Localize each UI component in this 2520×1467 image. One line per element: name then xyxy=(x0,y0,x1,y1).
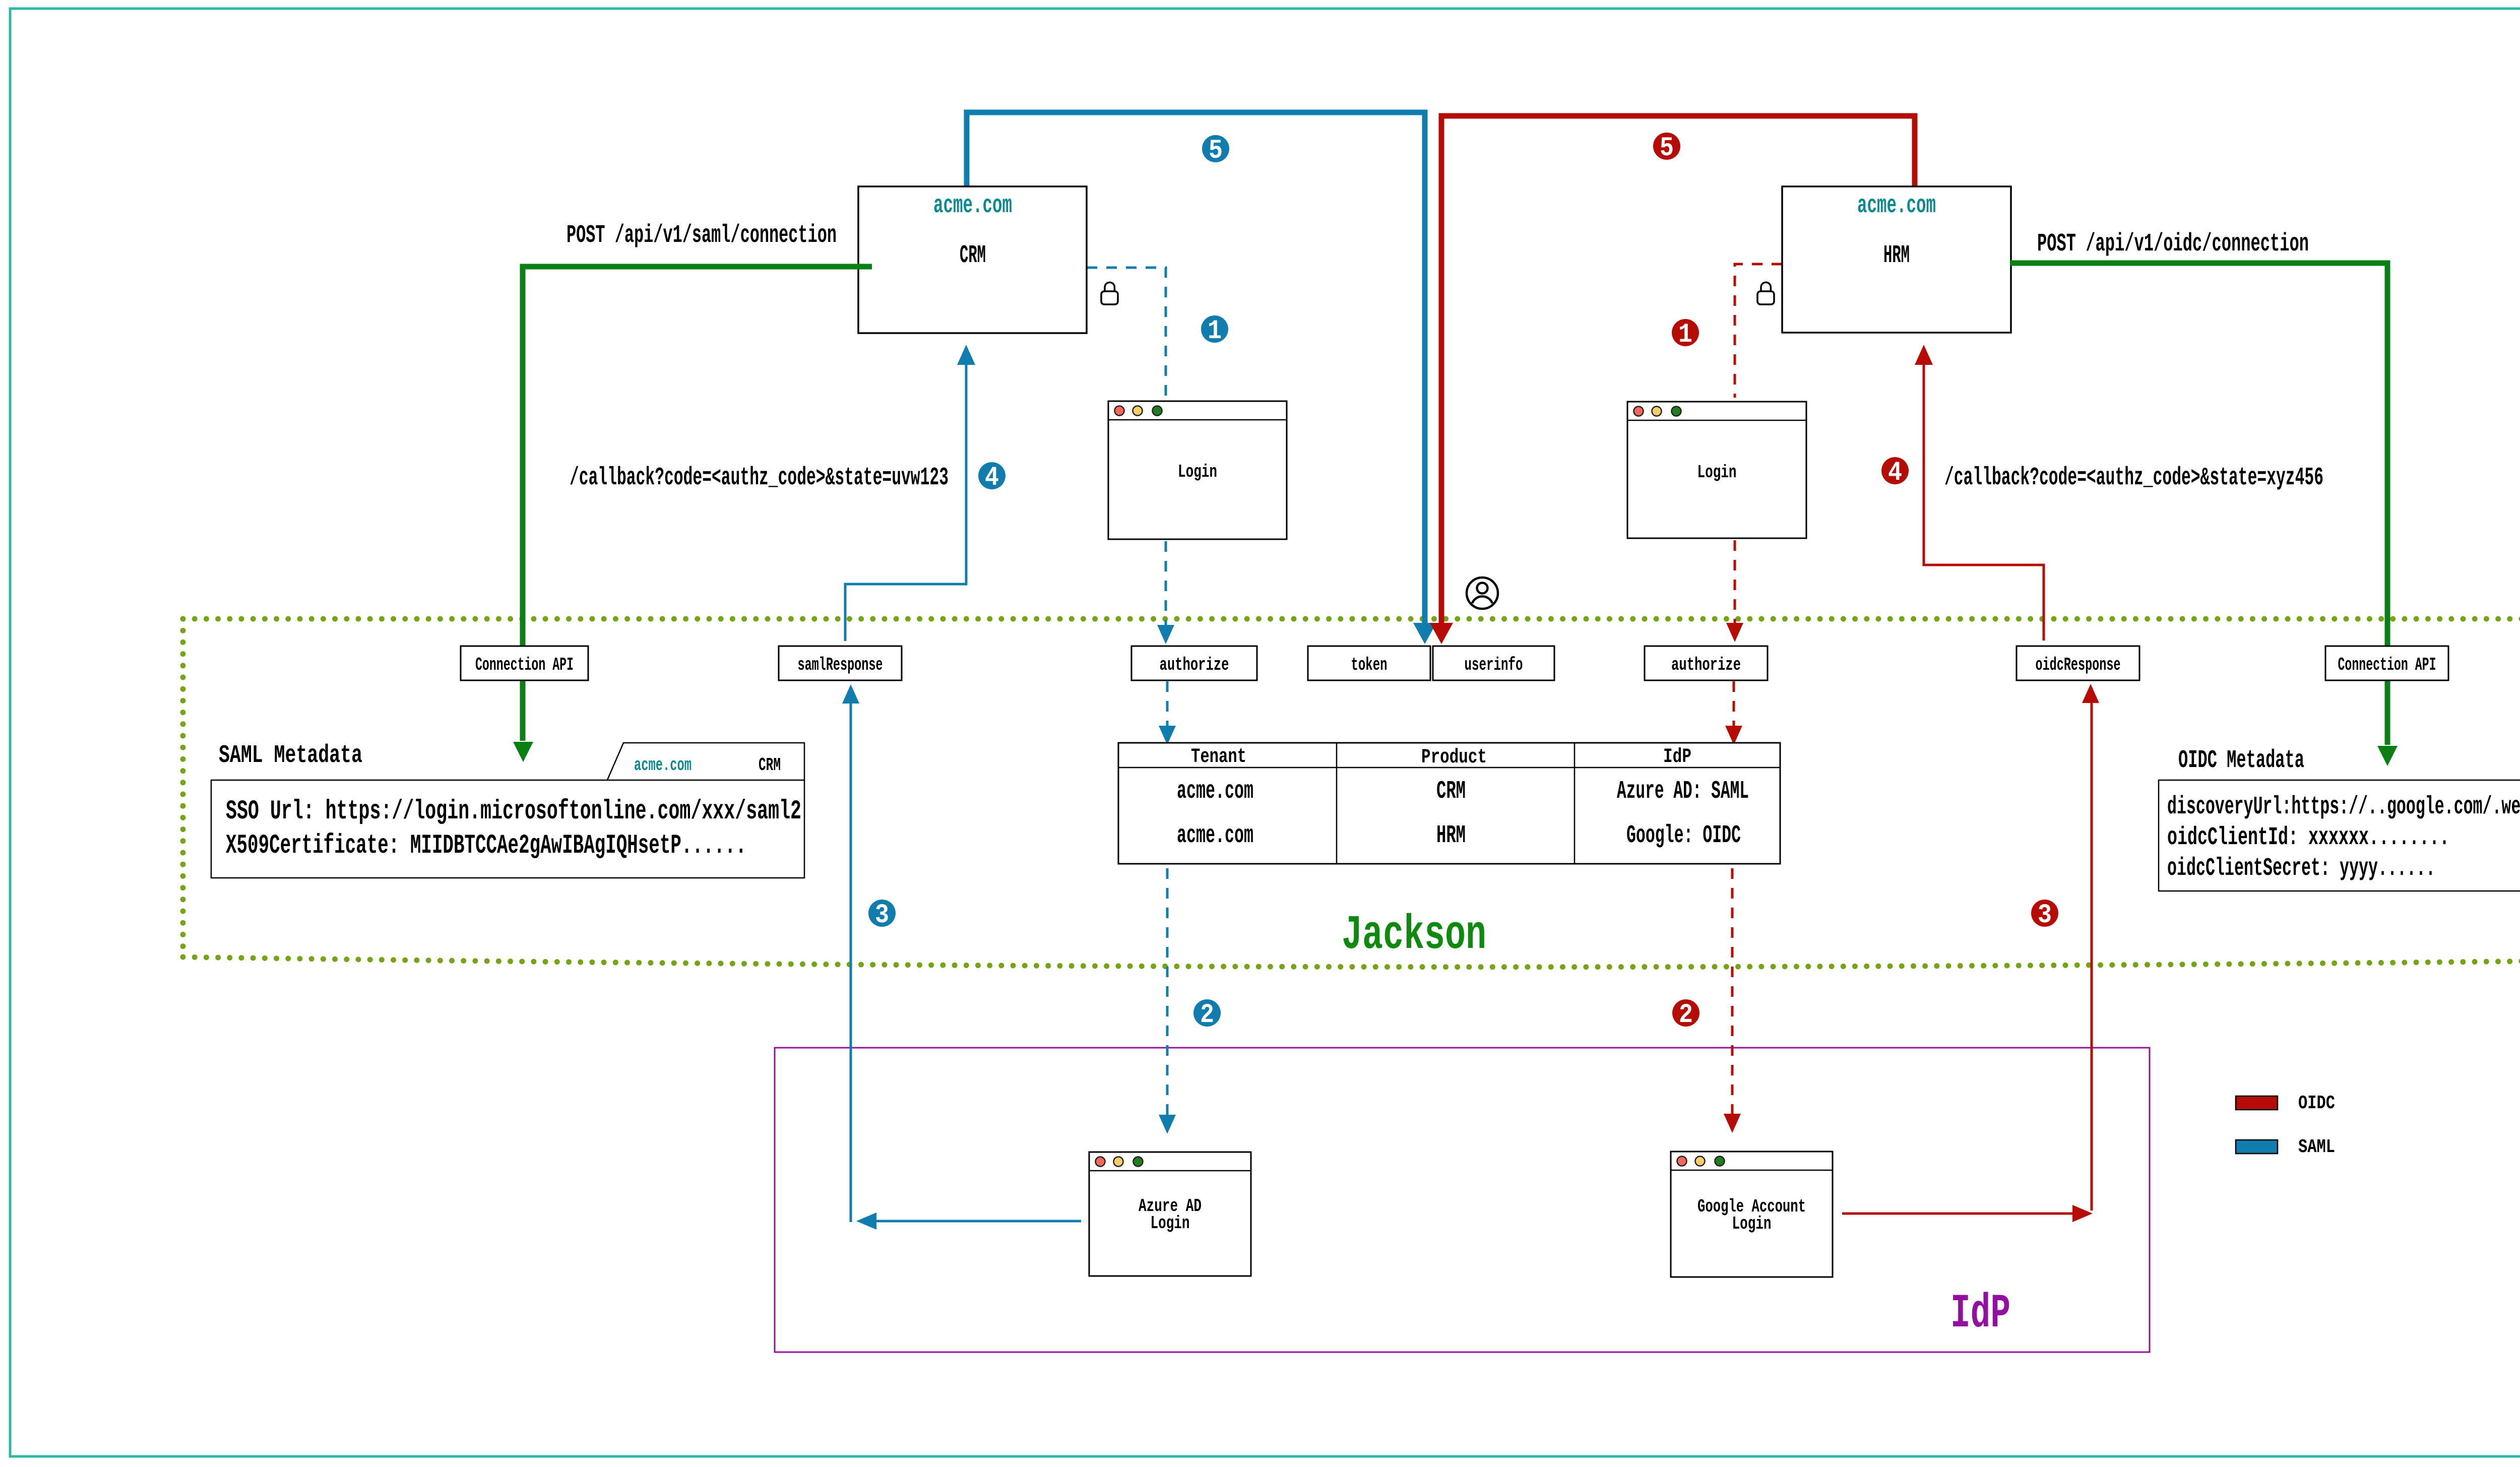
svg-text:acme.com: acme.com xyxy=(634,755,691,776)
svg-text:3: 3 xyxy=(875,900,889,931)
svg-text:Login: Login xyxy=(1178,462,1217,482)
svg-text:acme.com: acme.com xyxy=(933,192,1012,220)
svg-text:1: 1 xyxy=(1678,320,1692,350)
svg-text:Login: Login xyxy=(1151,1213,1190,1234)
svg-text:/callback?code=<authz_code>&st: /callback?code=<authz_code>&state=xyz456 xyxy=(1944,464,2323,492)
svg-text:5: 5 xyxy=(1209,136,1223,166)
svg-text:HRM: HRM xyxy=(1883,241,1910,270)
svg-text:OIDC: OIDC xyxy=(2298,1093,2335,1114)
svg-text:Login: Login xyxy=(1732,1214,1772,1234)
svg-text:token: token xyxy=(1351,655,1388,675)
svg-text:SSO Url: https://login.microso: SSO Url: https://login.microsoftonline.c… xyxy=(226,796,801,827)
svg-text:IdP: IdP xyxy=(1663,746,1691,769)
svg-text:oidcResponse: oidcResponse xyxy=(2036,655,2121,675)
svg-text:oidcClientId: xxxxxx........: oidcClientId: xxxxxx........ xyxy=(2167,823,2449,852)
svg-text:4: 4 xyxy=(985,463,999,493)
svg-text:OIDC Metadata: OIDC Metadata xyxy=(2178,746,2304,775)
svg-text:Google: OIDC: Google: OIDC xyxy=(1626,821,1741,850)
svg-text:Product: Product xyxy=(1421,746,1487,769)
svg-text:Azure AD: SAML: Azure AD: SAML xyxy=(1617,777,1749,806)
svg-text:oidcClientSecret: yyyy......: oidcClientSecret: yyyy...... xyxy=(2167,854,2435,883)
svg-text:CRM: CRM xyxy=(759,755,781,776)
svg-text:SAML: SAML xyxy=(2298,1136,2335,1158)
svg-text:X509Certificate: MIIDBTCCAe2gA: X509Certificate: MIIDBTCCAe2gAwIBAgIQHse… xyxy=(226,831,746,861)
svg-text:CRM: CRM xyxy=(960,241,986,270)
svg-text:1: 1 xyxy=(1208,316,1222,347)
svg-text:Connection API: Connection API xyxy=(475,655,574,675)
svg-text:Connection API: Connection API xyxy=(2338,655,2436,675)
svg-text:IdP: IdP xyxy=(1950,1287,2010,1341)
svg-text:2: 2 xyxy=(1679,1000,1693,1031)
svg-text:POST /api/v1/oidc/connection: POST /api/v1/oidc/connection xyxy=(2037,230,2309,259)
svg-text:3: 3 xyxy=(2038,900,2052,931)
svg-text:userinfo: userinfo xyxy=(1465,655,1523,675)
svg-text:2: 2 xyxy=(1200,1000,1214,1031)
svg-text:5: 5 xyxy=(1660,133,1674,164)
svg-text:acme.com: acme.com xyxy=(1857,192,1936,220)
svg-text:HRM: HRM xyxy=(1436,821,1466,850)
svg-text:samlResponse: samlResponse xyxy=(798,655,883,675)
svg-text:Jackson: Jackson xyxy=(1342,908,1486,963)
svg-text:4: 4 xyxy=(1888,458,1902,488)
svg-text:SAML Metadata: SAML Metadata xyxy=(219,741,362,770)
svg-text:authorize: authorize xyxy=(1671,655,1741,675)
svg-text:Login: Login xyxy=(1697,462,1737,483)
svg-text:/callback?code=<authz_code>&st: /callback?code=<authz_code>&state=uvw123 xyxy=(570,464,949,492)
svg-text:discoveryUrl:https://..google.: discoveryUrl:https://..google.com/.well-… xyxy=(2167,793,2520,821)
svg-text:acme.com: acme.com xyxy=(1177,777,1253,806)
svg-text:Tenant: Tenant xyxy=(1191,746,1246,769)
svg-text:CRM: CRM xyxy=(1436,777,1466,806)
svg-text:acme.com: acme.com xyxy=(1177,821,1253,850)
svg-text:authorize: authorize xyxy=(1160,655,1229,675)
svg-text:POST /api/v1/saml/connection: POST /api/v1/saml/connection xyxy=(566,221,837,250)
